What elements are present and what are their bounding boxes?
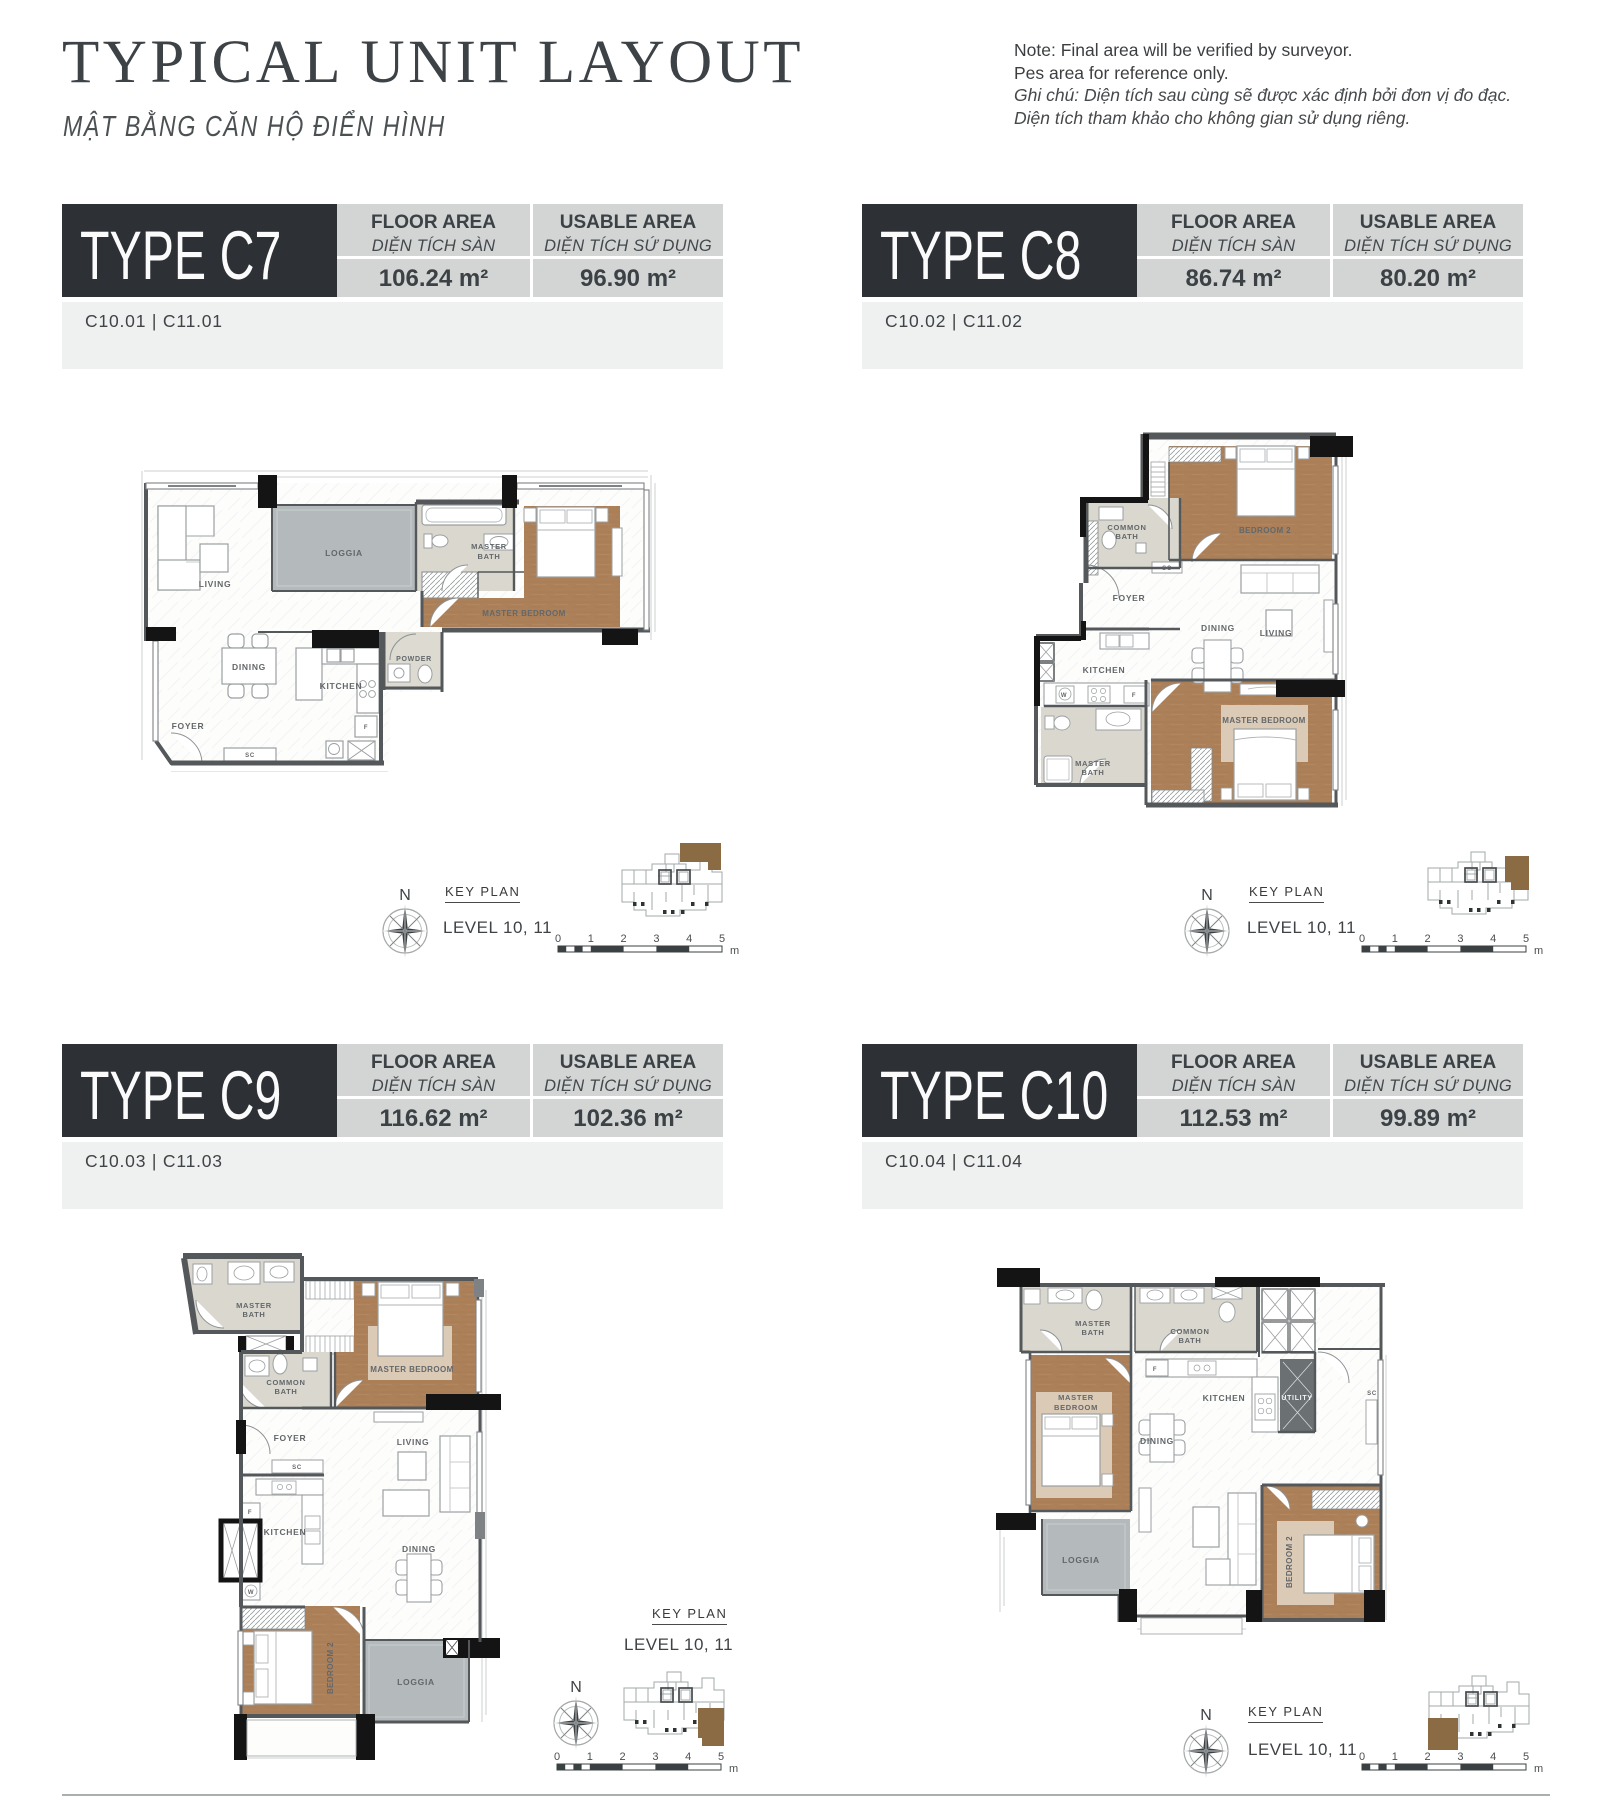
svg-text:MASTER: MASTER bbox=[1058, 1393, 1094, 1402]
svg-text:m: m bbox=[730, 945, 739, 956]
svg-text:BATH: BATH bbox=[1081, 1328, 1104, 1337]
svg-text:KITCHEN: KITCHEN bbox=[1083, 665, 1126, 675]
svg-text:KITCHEN: KITCHEN bbox=[320, 681, 363, 691]
svg-text:BATH: BATH bbox=[1081, 768, 1104, 777]
svg-text:LOGGIA: LOGGIA bbox=[325, 548, 363, 558]
svg-text:0: 0 bbox=[1359, 933, 1365, 945]
svg-text:BATH: BATH bbox=[1115, 532, 1138, 541]
svg-text:5: 5 bbox=[719, 933, 725, 945]
svg-text:4: 4 bbox=[686, 933, 692, 945]
svg-text:4: 4 bbox=[685, 1751, 691, 1763]
svg-text:KITCHEN: KITCHEN bbox=[264, 1527, 307, 1537]
svg-text:F: F bbox=[364, 725, 368, 731]
svg-text:1: 1 bbox=[1392, 933, 1398, 945]
svg-text:1: 1 bbox=[588, 933, 594, 945]
svg-text:BATH: BATH bbox=[477, 552, 500, 561]
svg-text:1: 1 bbox=[587, 1751, 593, 1763]
svg-text:SC: SC bbox=[292, 1465, 302, 1471]
svg-text:W: W bbox=[248, 1590, 254, 1596]
svg-text:DINING: DINING bbox=[1140, 1436, 1174, 1446]
svg-text:m: m bbox=[729, 1763, 738, 1774]
svg-text:2: 2 bbox=[1425, 933, 1431, 945]
svg-text:F: F bbox=[1153, 1367, 1157, 1373]
svg-text:UTILITY: UTILITY bbox=[1281, 1395, 1312, 1402]
svg-text:4: 4 bbox=[1490, 1751, 1496, 1763]
svg-text:N: N bbox=[399, 887, 411, 904]
svg-text:BEDROOM 2: BEDROOM 2 bbox=[1239, 526, 1291, 535]
svg-text:MASTER BEDROOM: MASTER BEDROOM bbox=[482, 609, 565, 618]
svg-text:COMMON: COMMON bbox=[1170, 1327, 1209, 1336]
svg-text:2: 2 bbox=[621, 933, 627, 945]
svg-text:N: N bbox=[1200, 1707, 1212, 1724]
svg-text:FOYER: FOYER bbox=[274, 1433, 307, 1443]
svg-text:DINING: DINING bbox=[1201, 623, 1235, 633]
svg-text:COMMON: COMMON bbox=[266, 1378, 305, 1387]
svg-text:MASTER: MASTER bbox=[236, 1301, 272, 1310]
svg-text:MASTER BEDROOM: MASTER BEDROOM bbox=[1222, 716, 1305, 725]
svg-text:1: 1 bbox=[1392, 1751, 1398, 1763]
svg-text:3: 3 bbox=[1457, 1751, 1463, 1763]
svg-text:2: 2 bbox=[1425, 1751, 1431, 1763]
svg-text:F: F bbox=[1132, 693, 1136, 699]
svg-text:N: N bbox=[570, 1679, 582, 1696]
svg-text:COMMON: COMMON bbox=[1107, 523, 1146, 532]
svg-text:FOYER: FOYER bbox=[172, 721, 205, 731]
svg-text:MASTER BEDROOM: MASTER BEDROOM bbox=[370, 1365, 453, 1374]
svg-text:DINING: DINING bbox=[232, 662, 266, 672]
svg-text:MASTER: MASTER bbox=[1075, 759, 1111, 768]
svg-text:5: 5 bbox=[718, 1751, 724, 1763]
svg-text:DINING: DINING bbox=[402, 1544, 436, 1554]
svg-text:F: F bbox=[248, 1510, 252, 1516]
svg-text:KITCHEN: KITCHEN bbox=[1203, 1393, 1246, 1403]
svg-text:SC: SC bbox=[1162, 566, 1172, 572]
svg-text:POWDER: POWDER bbox=[396, 656, 432, 663]
svg-text:W: W bbox=[1061, 693, 1067, 699]
svg-text:2: 2 bbox=[620, 1751, 626, 1763]
svg-text:4: 4 bbox=[1490, 933, 1496, 945]
svg-text:LOGGIA: LOGGIA bbox=[397, 1677, 435, 1687]
svg-text:3: 3 bbox=[1457, 933, 1463, 945]
svg-text:BEDROOM 2: BEDROOM 2 bbox=[1285, 1536, 1294, 1588]
svg-text:0: 0 bbox=[555, 933, 561, 945]
svg-text:LIVING: LIVING bbox=[397, 1437, 430, 1447]
svg-text:BEDROOM: BEDROOM bbox=[1054, 1403, 1098, 1412]
svg-text:0: 0 bbox=[1359, 1751, 1365, 1763]
svg-text:BEDROOM 2: BEDROOM 2 bbox=[326, 1642, 335, 1694]
svg-text:BATH: BATH bbox=[274, 1387, 297, 1396]
svg-text:5: 5 bbox=[1523, 933, 1529, 945]
svg-text:3: 3 bbox=[653, 933, 659, 945]
svg-text:LIVING: LIVING bbox=[1260, 628, 1293, 638]
svg-text:m: m bbox=[1534, 1763, 1543, 1774]
svg-text:BATH: BATH bbox=[242, 1310, 265, 1319]
svg-text:5: 5 bbox=[1523, 1751, 1529, 1763]
svg-text:SC: SC bbox=[1367, 1391, 1377, 1397]
svg-text:LIVING: LIVING bbox=[199, 579, 232, 589]
svg-text:m: m bbox=[1534, 945, 1543, 956]
svg-text:MASTER: MASTER bbox=[471, 542, 507, 551]
svg-text:BATH: BATH bbox=[1178, 1336, 1201, 1345]
svg-text:LOGGIA: LOGGIA bbox=[1062, 1555, 1100, 1565]
svg-text:0: 0 bbox=[554, 1751, 560, 1763]
svg-text:FOYER: FOYER bbox=[1113, 593, 1146, 603]
svg-text:SC: SC bbox=[245, 753, 255, 759]
svg-text:MASTER: MASTER bbox=[1075, 1319, 1111, 1328]
svg-text:N: N bbox=[1201, 887, 1213, 904]
svg-text:3: 3 bbox=[652, 1751, 658, 1763]
